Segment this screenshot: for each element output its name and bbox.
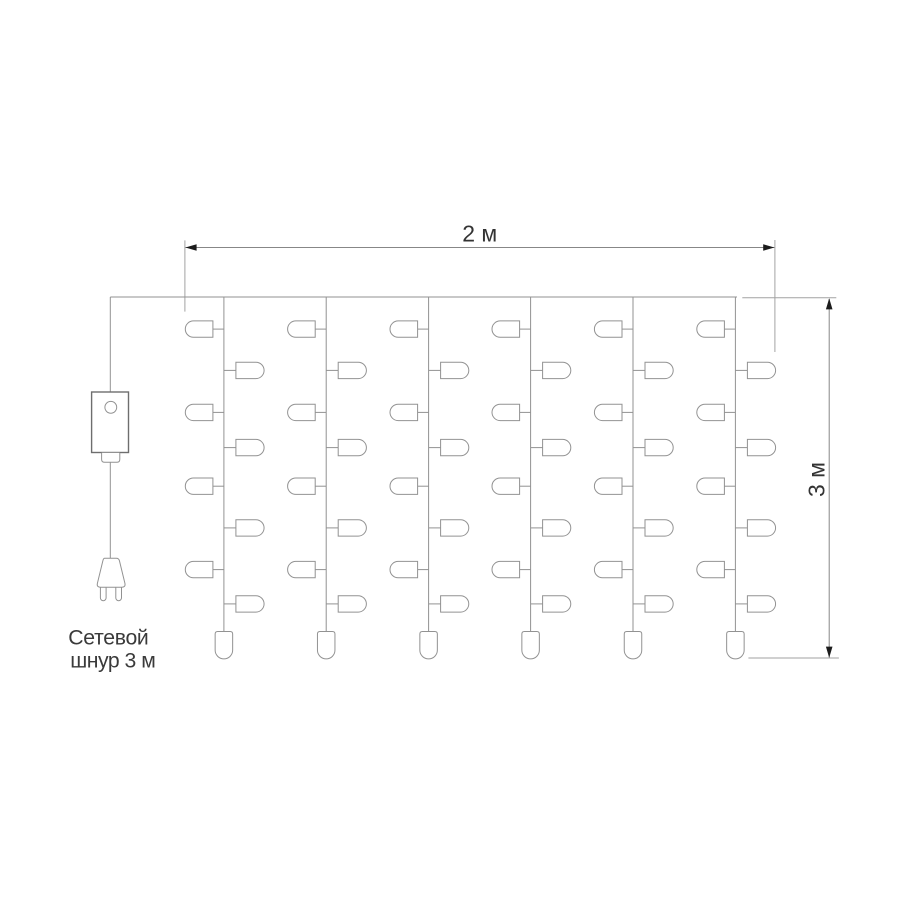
svg-text:2 м: 2 м xyxy=(462,221,497,247)
svg-text:3 м: 3 м xyxy=(803,462,829,497)
svg-text:Сетевой: Сетевой xyxy=(68,627,148,650)
svg-text:шнур 3 м: шнур 3 м xyxy=(70,649,155,672)
